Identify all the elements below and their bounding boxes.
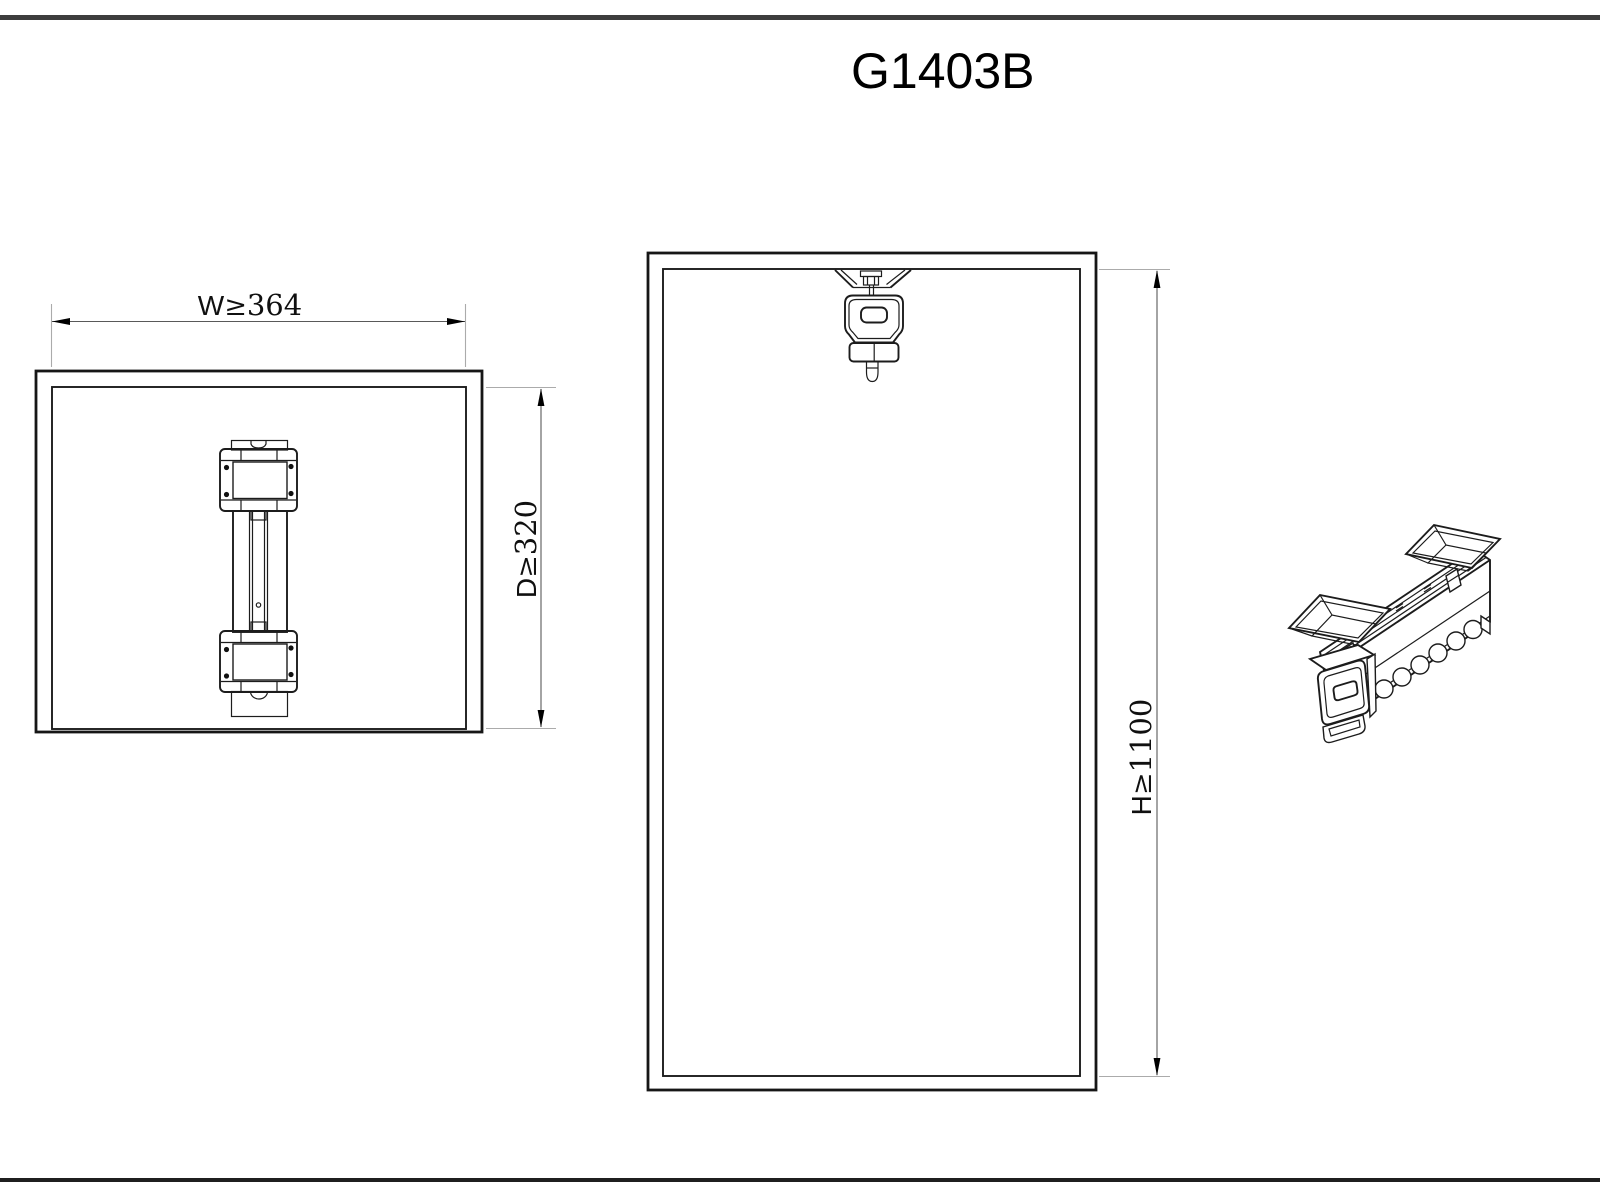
arm-hole [1393,668,1411,686]
front-view-outer-frame [648,253,1096,1090]
clamp-body [845,296,903,343]
screw-hole [224,492,229,497]
clamp-screw-cap [861,271,882,277]
arrowhead-top [538,389,545,407]
screw-hole [288,464,293,469]
top-view-bracket [220,441,297,717]
arm-hole [1411,656,1429,674]
bracket-top-tab-notch [251,441,266,448]
isometric-view [1289,525,1500,743]
arrowhead-bottom [1154,1058,1161,1076]
arm-hole [1464,621,1482,639]
dimension-width-label: W≥364 [198,288,302,322]
screw-hole [224,647,229,652]
clamp-body-inner [849,300,899,339]
arrowhead-right [447,318,465,325]
technical-drawing: W≥364 D≥320 [0,0,1600,1200]
screw-hole [288,491,293,496]
rail-pivot-hole [256,603,260,607]
clamp-screw-body [864,277,879,286]
arrowhead-top [1154,270,1161,288]
top-view [36,371,482,732]
dimension-height-label: H≥1100 [1124,699,1158,816]
screw-hole [288,645,293,650]
front-view [648,253,1096,1090]
arm-hole [1447,632,1465,650]
clamp-pin [867,362,879,382]
screw-hole [224,465,229,470]
bracket-bottom-plate-window [233,644,287,680]
arrowhead-left [52,318,70,325]
bracket-rail [233,511,287,632]
arrowhead-bottom [538,710,545,728]
bracket-top-plate-window [233,462,287,499]
arm-hole [1429,644,1447,662]
drawing-sheet: G1403B [0,0,1600,1200]
rail-top-connector [251,511,266,520]
dimension-width: W≥364 [52,288,466,367]
arm-hole [1375,680,1393,698]
front-view-clamp [835,270,911,382]
dimension-depth-label: D≥320 [509,500,543,598]
bracket-bottom-tab [232,692,288,717]
screw-hole [288,672,293,677]
front-view-inner-frame [663,269,1080,1076]
clamp-window-slot [861,308,887,323]
dimension-depth: D≥320 [486,388,556,729]
screw-hole [224,673,229,678]
dimension-height: H≥1100 [1099,270,1170,1077]
